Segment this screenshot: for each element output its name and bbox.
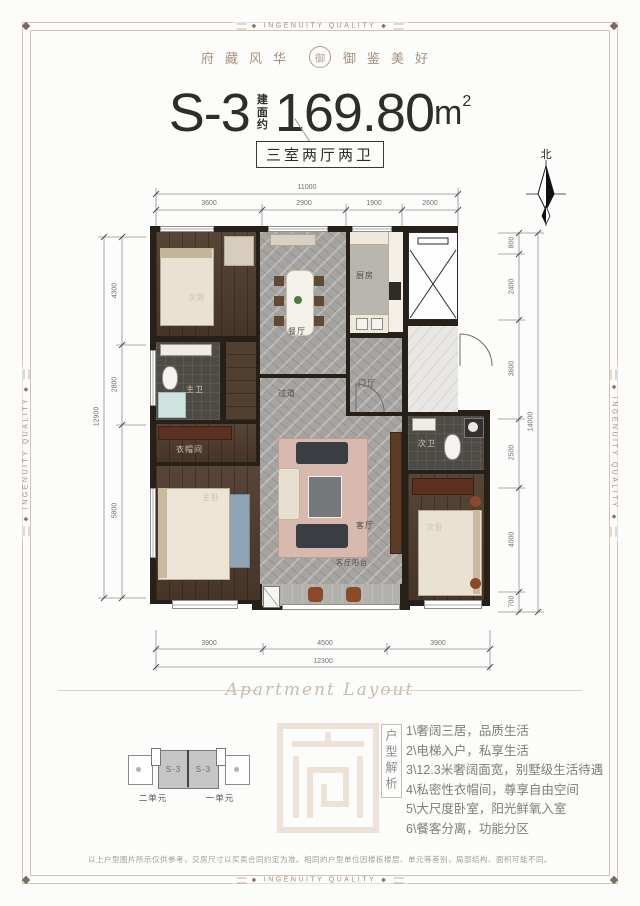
window bbox=[150, 350, 156, 406]
furniture-coffee-table bbox=[308, 476, 342, 518]
divider-line-right bbox=[382, 690, 582, 691]
dim-left-1: 4300 bbox=[112, 271, 119, 311]
dim-top-4: 2600 bbox=[410, 200, 450, 207]
window bbox=[150, 488, 156, 558]
poster-page: ◆INGENUITY QUALITY◆ ◆INGENUITY QUALITY◆ … bbox=[0, 0, 640, 906]
dim-bottom-total: 12300 bbox=[303, 658, 343, 665]
dim-left-total: 12900 bbox=[94, 397, 101, 437]
kitchen-sink bbox=[356, 318, 368, 330]
border-label-left: ◆INGENUITY QUALITY◆ bbox=[23, 366, 30, 541]
furniture-chair bbox=[314, 296, 324, 306]
diamond-icon: ◆ bbox=[381, 23, 388, 30]
room-label-balcony: 客厅阳台 bbox=[336, 558, 368, 568]
unit-key-divider bbox=[187, 750, 189, 787]
furniture-sofa bbox=[296, 442, 348, 464]
furniture-stool bbox=[470, 496, 481, 507]
diamond-icon: ◆ bbox=[252, 877, 259, 884]
analysis-item: 6\餐客分离，功能分区 bbox=[406, 820, 603, 840]
window bbox=[268, 226, 328, 232]
furniture-wardrobe bbox=[158, 426, 232, 440]
entry-hall bbox=[408, 326, 458, 412]
dim-bottom-1: 3900 bbox=[189, 640, 229, 647]
border-label-text: INGENUITY QUALITY bbox=[264, 877, 376, 884]
room-label-living: 客厅 bbox=[356, 520, 374, 531]
analysis-item: 3\12.3米奢阔面宽，别墅级生活待遇 bbox=[406, 761, 603, 781]
analysis-item: 5\大尺度卧室，阳光鲜氧入室 bbox=[406, 800, 603, 820]
furniture-headboard bbox=[160, 248, 212, 258]
unit-key-block-label: S-3 bbox=[166, 765, 181, 774]
brand-header: 府藏风华 御 御鉴美好 bbox=[0, 46, 640, 68]
room-label-master-bedroom: 主卧 bbox=[202, 492, 220, 503]
fixture-shower bbox=[158, 392, 186, 418]
room-label-bedroom-south: 次卧 bbox=[426, 522, 444, 533]
room-balcony bbox=[262, 584, 400, 606]
analysis-item: 2\电梯入户，私享生活 bbox=[406, 742, 603, 762]
diamond-icon: ◆ bbox=[611, 514, 618, 521]
room-foyer bbox=[350, 338, 402, 412]
unit-key-label-right: 一单元 bbox=[200, 792, 240, 804]
title-block: S-3 建面约 169.80 m2 bbox=[0, 86, 640, 140]
double-line-icon bbox=[23, 526, 29, 536]
double-line-icon bbox=[23, 370, 29, 380]
border-label-text: INGENUITY QUALITY bbox=[611, 397, 618, 509]
unit-key-block-right: S-3 bbox=[188, 750, 219, 789]
furniture-sideboard bbox=[270, 234, 316, 246]
dim-right-5: 4000 bbox=[509, 520, 516, 560]
dim-right-total: 14000 bbox=[528, 402, 535, 442]
double-line-icon bbox=[237, 23, 247, 29]
diamond-icon: ◆ bbox=[23, 385, 30, 392]
dim-top-2: 2900 bbox=[284, 200, 324, 207]
window-bay bbox=[424, 600, 482, 609]
unit-key-dot bbox=[234, 767, 239, 772]
diamond-icon: ◆ bbox=[252, 23, 259, 30]
brand-seal-icon: 御 bbox=[309, 46, 331, 68]
furniture-sofa bbox=[296, 524, 348, 548]
dim-left-3: 5800 bbox=[112, 491, 119, 531]
double-line-icon bbox=[393, 23, 403, 29]
furniture-armchair bbox=[278, 468, 300, 520]
furniture-chair bbox=[274, 296, 284, 306]
area-prefix: 建面约 bbox=[257, 94, 270, 132]
window bbox=[352, 226, 392, 232]
furniture-chair bbox=[314, 276, 324, 286]
room-label-dining: 餐厅 bbox=[288, 326, 306, 337]
disclaimer-text: 以上户型图片所示仅供参考，交房尺寸以买卖合同约定为准。相同的户型单位因楼栋楼层、… bbox=[0, 854, 640, 865]
room-label-kitchen: 厨房 bbox=[356, 270, 374, 281]
double-line-icon bbox=[611, 370, 617, 380]
plant-icon bbox=[294, 296, 302, 304]
furniture-chair bbox=[274, 276, 284, 286]
border-label-bottom: ◆INGENUITY QUALITY◆ bbox=[233, 877, 408, 884]
furniture-balcony-chair bbox=[308, 587, 323, 602]
floor-plan: 次卧 主卫 衣帽间 主卧 餐厅 bbox=[150, 226, 496, 614]
border-label-right: ◆INGENUITY QUALITY◆ bbox=[611, 366, 618, 541]
double-line-icon bbox=[611, 526, 617, 536]
dim-right-3: 3600 bbox=[509, 349, 516, 389]
window bbox=[160, 226, 214, 232]
room-label-foyer: 门厅 bbox=[358, 378, 376, 389]
dim-bottom-3: 3900 bbox=[418, 640, 458, 647]
area-value: 169.80 bbox=[275, 86, 434, 140]
kitchen-stove bbox=[389, 282, 401, 300]
balcony-railing bbox=[282, 604, 400, 610]
brand-maze-logo-icon bbox=[276, 722, 380, 834]
hall-wood-strip bbox=[226, 342, 256, 420]
border-label-text: INGENUITY QUALITY bbox=[264, 23, 376, 30]
unit-key-label-left: 二单元 bbox=[133, 792, 173, 804]
analysis-item: 1\奢阔三居，品质生活 bbox=[406, 722, 603, 742]
layout-badge: 三室两厅两卫 bbox=[256, 141, 384, 168]
unit-model: S-3 bbox=[169, 86, 250, 140]
washer-drum-icon bbox=[468, 422, 478, 432]
analysis-list: 1\奢阔三居，品质生活 2\电梯入户，私享生活 3\12.3米奢阔面宽，别墅级生… bbox=[406, 722, 603, 839]
double-line-icon bbox=[237, 877, 247, 883]
analysis-item: 4\私密性衣帽间，尊享自由空间 bbox=[406, 781, 603, 801]
analysis-heading: 户型解析 bbox=[381, 724, 402, 798]
unit-key-diagram: S-3 S-3 二单元 一单元 bbox=[127, 746, 249, 804]
brand-left-text: 府藏风华 bbox=[201, 48, 297, 67]
room-label-bedroom-north: 次卧 bbox=[188, 292, 206, 303]
dim-right-4: 2500 bbox=[509, 433, 516, 473]
furniture-stool bbox=[470, 578, 481, 589]
furniture-balcony-chair bbox=[346, 587, 361, 602]
room-label-bath2: 次卫 bbox=[418, 438, 436, 449]
furniture-bed bbox=[160, 248, 214, 326]
furniture-tv-console bbox=[390, 432, 402, 554]
unit-key-block-label: S-3 bbox=[196, 765, 211, 774]
fixture-toilet bbox=[444, 434, 461, 460]
furniture-rug bbox=[224, 236, 254, 266]
area-unit: m2 bbox=[434, 93, 471, 133]
dim-top-total: 11000 bbox=[287, 184, 327, 191]
dim-top-3: 1900 bbox=[354, 200, 394, 207]
diamond-icon: ◆ bbox=[23, 514, 30, 521]
room-label-cloakroom: 衣帽间 bbox=[176, 444, 203, 455]
unit-key-dot bbox=[136, 767, 141, 772]
dim-bottom-2: 4500 bbox=[305, 640, 345, 647]
dim-right-6: 700 bbox=[509, 582, 516, 622]
window-bay bbox=[172, 600, 238, 609]
kitchen-sink bbox=[371, 318, 383, 330]
furniture-headboard bbox=[158, 488, 167, 578]
unit-key-block-left: S-3 bbox=[158, 750, 189, 789]
furniture-chair bbox=[274, 316, 284, 326]
border-label-text: INGENUITY QUALITY bbox=[23, 397, 30, 509]
fixture-vanity bbox=[160, 344, 212, 356]
equipment-box bbox=[263, 586, 280, 608]
dim-left-2: 2800 bbox=[112, 365, 119, 405]
room-label-master-bath: 主卫 bbox=[186, 384, 204, 395]
unit-key-chimney bbox=[151, 748, 161, 766]
double-line-icon bbox=[393, 877, 403, 883]
brand-right-text: 御鉴美好 bbox=[343, 48, 439, 67]
room-label-hallway: 过道 bbox=[278, 388, 296, 399]
dim-top-1: 3600 bbox=[189, 200, 229, 207]
dim-right-1: 800 bbox=[509, 223, 516, 263]
furniture-chair bbox=[314, 316, 324, 326]
diamond-icon: ◆ bbox=[381, 877, 388, 884]
fixture-vanity bbox=[412, 418, 436, 431]
diamond-icon: ◆ bbox=[611, 385, 618, 392]
dim-right-2: 2400 bbox=[509, 267, 516, 307]
furniture-wardrobe bbox=[412, 478, 474, 495]
border-label-top: ◆INGENUITY QUALITY◆ bbox=[233, 23, 408, 30]
elevator-shaft bbox=[408, 232, 458, 320]
compass-icon bbox=[524, 158, 568, 230]
fixture-toilet bbox=[162, 366, 178, 390]
